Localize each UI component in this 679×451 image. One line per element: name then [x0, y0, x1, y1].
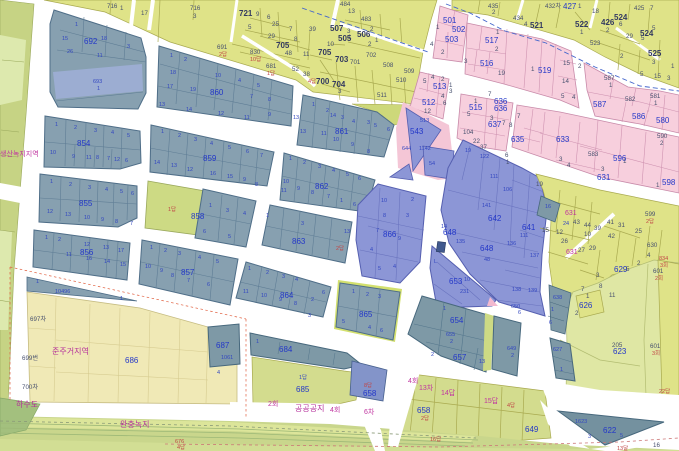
svg-text:1답: 1답 [299, 374, 307, 381]
svg-text:6: 6 [505, 152, 509, 159]
svg-text:1: 1 [436, 24, 440, 31]
svg-text:512: 512 [422, 98, 436, 107]
svg-text:31: 31 [618, 222, 625, 229]
svg-text:7: 7 [187, 278, 190, 284]
svg-text:2: 2 [178, 133, 181, 139]
svg-text:6: 6 [358, 176, 361, 182]
svg-text:635: 635 [511, 135, 525, 144]
svg-text:1: 1 [551, 307, 554, 313]
svg-text:10: 10 [333, 137, 339, 143]
svg-text:13: 13 [103, 245, 109, 251]
svg-text:3: 3 [127, 44, 130, 50]
svg-text:111: 111 [490, 174, 498, 180]
svg-text:19: 19 [498, 70, 505, 77]
svg-text:2: 2 [164, 248, 167, 254]
svg-text:19: 19 [465, 148, 471, 154]
svg-text:5: 5 [127, 133, 130, 139]
svg-text:861: 861 [335, 127, 349, 136]
svg-text:38: 38 [303, 71, 310, 78]
svg-text:1: 1 [170, 53, 173, 59]
svg-text:17: 17 [167, 84, 173, 90]
svg-text:15: 15 [563, 60, 570, 67]
svg-text:2: 2 [326, 108, 329, 114]
svg-text:2: 2 [368, 41, 372, 48]
svg-text:138: 138 [512, 287, 521, 293]
svg-text:684: 684 [279, 345, 293, 354]
svg-text:4: 4 [198, 255, 201, 261]
svg-text:3: 3 [378, 294, 381, 300]
svg-text:2: 2 [575, 310, 579, 317]
svg-text:648: 648 [480, 244, 494, 253]
svg-text:590: 590 [657, 133, 668, 140]
svg-text:502: 502 [452, 25, 466, 34]
svg-text:4: 4 [430, 41, 434, 48]
svg-text:13: 13 [293, 115, 299, 121]
svg-text:10답: 10답 [250, 56, 261, 63]
svg-text:3: 3 [652, 59, 656, 66]
svg-text:9: 9 [398, 236, 401, 242]
svg-text:1: 1 [474, 98, 478, 105]
svg-text:2회: 2회 [268, 400, 278, 408]
svg-text:6: 6 [619, 21, 623, 28]
svg-text:626: 626 [579, 301, 593, 310]
svg-text:15: 15 [120, 262, 126, 268]
svg-text:8: 8 [599, 283, 603, 290]
svg-text:4: 4 [111, 130, 114, 136]
svg-text:3: 3 [178, 251, 181, 257]
svg-text:1: 1 [654, 100, 658, 107]
svg-text:8: 8 [509, 122, 513, 129]
svg-text:54: 54 [429, 161, 435, 167]
svg-text:700: 700 [316, 77, 330, 86]
svg-text:12: 12 [47, 209, 53, 215]
svg-text:716: 716 [190, 5, 201, 12]
svg-text:13: 13 [65, 212, 71, 218]
svg-text:1: 1 [289, 156, 292, 162]
svg-text:14: 14 [330, 113, 336, 119]
svg-text:27: 27 [578, 247, 585, 254]
svg-text:506: 506 [357, 30, 371, 39]
svg-text:4회: 4회 [408, 377, 418, 385]
svg-text:14: 14 [562, 78, 569, 85]
svg-text:15: 15 [654, 73, 661, 80]
svg-text:141: 141 [482, 203, 491, 209]
svg-text:6: 6 [380, 328, 383, 334]
svg-text:10496: 10496 [55, 289, 70, 295]
svg-text:9: 9 [279, 297, 282, 303]
svg-text:완충녹지: 완충녹지 [120, 420, 149, 429]
svg-text:1: 1 [671, 63, 675, 70]
svg-text:501: 501 [443, 16, 457, 25]
svg-text:13차: 13차 [419, 383, 434, 392]
svg-text:7: 7 [502, 120, 506, 127]
svg-text:6: 6 [353, 202, 356, 208]
svg-text:5: 5 [423, 78, 427, 85]
svg-text:4: 4 [210, 141, 213, 147]
svg-text:513: 513 [433, 82, 447, 91]
svg-text:2: 2 [366, 292, 369, 298]
svg-text:633: 633 [556, 135, 570, 144]
svg-text:4회: 4회 [330, 406, 340, 414]
svg-text:866: 866 [383, 230, 397, 239]
svg-text:5: 5 [378, 266, 381, 272]
svg-text:3: 3 [308, 313, 311, 319]
svg-text:6: 6 [549, 320, 552, 326]
svg-text:8: 8 [311, 190, 314, 196]
svg-text:10: 10 [145, 264, 151, 270]
svg-text:864: 864 [280, 291, 294, 300]
svg-text:생산녹지지역: 생산녹지지역 [0, 149, 39, 158]
svg-text:15: 15 [62, 36, 68, 42]
svg-text:1: 1 [75, 22, 78, 28]
svg-text:9: 9 [101, 217, 104, 223]
svg-text:587: 587 [593, 100, 607, 109]
svg-text:3: 3 [193, 13, 197, 20]
svg-text:2답: 2답 [336, 245, 344, 252]
svg-text:623: 623 [613, 347, 627, 356]
svg-text:1: 1 [266, 213, 269, 219]
svg-text:627: 627 [553, 347, 562, 353]
svg-text:2: 2 [58, 237, 61, 243]
svg-text:434: 434 [513, 15, 524, 22]
svg-text:106: 106 [503, 187, 512, 193]
svg-text:859: 859 [203, 154, 217, 163]
svg-text:1: 1 [97, 86, 100, 92]
svg-text:3: 3 [318, 164, 321, 170]
svg-text:7: 7 [289, 26, 293, 33]
svg-text:587: 587 [604, 75, 615, 82]
svg-text:3: 3 [406, 213, 409, 219]
svg-text:11: 11 [609, 292, 616, 299]
svg-text:10: 10 [381, 198, 387, 204]
svg-text:136: 136 [507, 241, 516, 247]
svg-text:14: 14 [154, 160, 160, 166]
svg-text:137: 137 [530, 253, 539, 259]
svg-text:3: 3 [88, 185, 91, 191]
svg-text:2: 2 [441, 76, 445, 83]
svg-text:4: 4 [393, 264, 396, 270]
svg-text:691: 691 [217, 44, 228, 51]
svg-text:3: 3 [601, 166, 605, 173]
svg-text:5: 5 [257, 83, 260, 89]
svg-text:1061: 1061 [221, 355, 233, 361]
svg-text:1: 1 [580, 29, 584, 36]
svg-text:18: 18 [170, 70, 176, 76]
svg-text:631: 631 [597, 173, 611, 182]
svg-text:14: 14 [441, 224, 447, 230]
svg-text:517: 517 [485, 36, 499, 45]
svg-text:15: 15 [227, 174, 233, 180]
svg-text:16: 16 [210, 171, 216, 177]
svg-text:599: 599 [645, 211, 656, 218]
svg-text:3: 3 [194, 137, 197, 143]
svg-text:865: 865 [359, 310, 373, 319]
svg-text:2: 2 [606, 27, 610, 34]
svg-text:699번: 699번 [22, 354, 38, 362]
svg-text:9: 9 [351, 142, 354, 148]
svg-text:8답: 8답 [364, 382, 372, 389]
svg-text:716: 716 [107, 3, 118, 10]
svg-text:12: 12 [114, 157, 120, 163]
svg-text:721: 721 [239, 9, 253, 18]
svg-text:1623: 1623 [575, 419, 587, 425]
svg-text:5: 5 [228, 234, 231, 240]
svg-text:2: 2 [311, 297, 314, 303]
svg-text:6: 6 [246, 149, 249, 155]
svg-text:1답: 1답 [168, 206, 176, 213]
svg-text:17: 17 [141, 10, 148, 17]
svg-text:3: 3 [94, 128, 97, 134]
svg-text:41: 41 [607, 219, 614, 226]
svg-text:15: 15 [542, 227, 549, 234]
svg-text:522: 522 [575, 20, 589, 29]
svg-text:2: 2 [431, 352, 434, 358]
svg-text:2: 2 [660, 140, 664, 147]
svg-text:1142: 1142 [419, 146, 431, 152]
svg-text:12: 12 [424, 108, 431, 115]
svg-text:7: 7 [250, 94, 253, 100]
svg-text:6: 6 [518, 310, 521, 316]
svg-text:1: 1 [209, 203, 212, 209]
svg-text:11: 11 [243, 289, 249, 295]
svg-text:3: 3 [338, 88, 342, 95]
svg-text:1: 1 [312, 102, 315, 108]
svg-text:631: 631 [565, 210, 577, 217]
svg-text:26: 26 [67, 49, 73, 55]
svg-text:12: 12 [218, 111, 224, 117]
svg-text:4: 4 [524, 21, 528, 28]
svg-text:2: 2 [74, 125, 77, 131]
svg-text:11: 11 [321, 131, 327, 137]
svg-text:508: 508 [383, 62, 394, 69]
svg-text:9: 9 [160, 268, 163, 274]
svg-text:5: 5 [216, 259, 219, 265]
svg-text:4: 4 [368, 325, 371, 331]
svg-text:654: 654 [450, 316, 464, 325]
svg-text:13: 13 [159, 102, 165, 108]
svg-text:139: 139 [528, 288, 537, 294]
svg-text:630: 630 [647, 242, 658, 249]
svg-text:426: 426 [601, 18, 615, 27]
svg-text:692: 692 [84, 37, 98, 46]
svg-text:29: 29 [589, 245, 596, 252]
svg-text:5: 5 [652, 25, 656, 32]
svg-text:11: 11 [86, 155, 92, 161]
svg-text:공공공지: 공공공지 [295, 404, 324, 413]
svg-text:644: 644 [402, 146, 411, 152]
svg-text:1: 1 [609, 82, 613, 89]
svg-text:505: 505 [338, 34, 352, 43]
svg-text:1: 1 [578, 3, 582, 10]
svg-text:9: 9 [256, 11, 260, 18]
svg-text:658: 658 [417, 406, 431, 415]
svg-text:10: 10 [50, 150, 56, 156]
svg-text:1: 1 [560, 367, 563, 373]
svg-text:12: 12 [187, 167, 193, 173]
svg-text:10: 10 [261, 293, 267, 299]
svg-text:1: 1 [496, 29, 500, 36]
svg-text:11: 11 [97, 53, 103, 59]
svg-text:6: 6 [125, 158, 128, 164]
svg-text:653: 653 [449, 277, 463, 286]
svg-text:1: 1 [120, 296, 123, 302]
svg-text:2: 2 [450, 339, 453, 345]
svg-text:2: 2 [370, 26, 374, 33]
svg-text:10: 10 [464, 277, 470, 283]
svg-text:1: 1 [36, 279, 39, 285]
svg-text:523: 523 [590, 40, 601, 47]
svg-text:834: 834 [659, 256, 668, 262]
svg-text:3: 3 [367, 120, 370, 126]
svg-text:642: 642 [488, 214, 502, 223]
svg-text:39: 39 [594, 225, 601, 232]
svg-text:6: 6 [207, 282, 210, 288]
svg-text:7: 7 [650, 5, 654, 12]
svg-text:636: 636 [494, 104, 508, 113]
svg-text:6: 6 [203, 229, 206, 235]
svg-text:37: 37 [480, 144, 487, 151]
svg-text:5: 5 [561, 93, 565, 100]
svg-text:641: 641 [522, 223, 536, 232]
svg-text:862: 862 [315, 182, 329, 191]
svg-text:42: 42 [608, 233, 615, 240]
svg-text:5: 5 [228, 145, 231, 151]
svg-text:543: 543 [410, 127, 424, 136]
svg-text:7: 7 [130, 221, 133, 227]
svg-text:5: 5 [641, 35, 645, 42]
svg-text:10: 10 [84, 215, 90, 221]
svg-text:649: 649 [525, 425, 539, 434]
svg-text:준주거지역: 준주거지역 [52, 346, 89, 356]
svg-text:122: 122 [480, 154, 489, 160]
svg-text:111: 111 [520, 233, 528, 239]
svg-text:581: 581 [650, 93, 661, 100]
svg-text:8: 8 [115, 219, 118, 225]
svg-text:8: 8 [255, 182, 258, 188]
svg-text:2회: 2회 [655, 274, 663, 282]
svg-text:8: 8 [294, 36, 298, 43]
svg-text:3: 3 [667, 75, 671, 82]
svg-text:649: 649 [507, 346, 516, 352]
svg-text:14: 14 [186, 107, 192, 113]
svg-text:432차: 432차 [545, 2, 561, 10]
svg-text:4: 4 [295, 277, 298, 283]
svg-text:6: 6 [322, 290, 325, 296]
svg-text:1: 1 [623, 158, 627, 165]
svg-text:7: 7 [488, 91, 492, 98]
svg-text:2: 2 [266, 270, 269, 276]
svg-text:231: 231 [460, 289, 469, 295]
svg-text:5: 5 [620, 433, 623, 439]
svg-text:2: 2 [411, 197, 414, 203]
svg-text:1: 1 [248, 266, 251, 272]
svg-text:681: 681 [266, 63, 277, 70]
svg-text:1: 1 [506, 159, 510, 166]
svg-text:6: 6 [443, 100, 447, 107]
svg-text:638: 638 [553, 295, 562, 301]
svg-text:13: 13 [344, 229, 350, 235]
svg-text:582: 582 [625, 96, 636, 103]
svg-text:1: 1 [531, 66, 535, 73]
svg-text:860: 860 [210, 88, 224, 97]
svg-text:3: 3 [588, 434, 591, 440]
svg-text:686: 686 [125, 356, 139, 365]
svg-text:13: 13 [171, 163, 177, 169]
svg-text:19: 19 [536, 181, 543, 188]
svg-text:3회: 3회 [652, 349, 660, 357]
svg-text:13: 13 [348, 8, 355, 15]
svg-text:5: 5 [120, 189, 123, 195]
svg-text:4: 4 [370, 247, 373, 253]
svg-text:48: 48 [484, 257, 490, 263]
svg-text:1: 1 [340, 198, 343, 204]
svg-text:2: 2 [441, 49, 445, 56]
svg-text:1: 1 [50, 179, 53, 185]
svg-text:702: 702 [366, 52, 377, 59]
svg-text:1답: 1답 [267, 70, 275, 77]
svg-text:2답: 2답 [646, 218, 654, 225]
svg-text:511: 511 [377, 92, 387, 99]
svg-text:2: 2 [492, 9, 496, 16]
svg-text:10: 10 [215, 73, 221, 79]
svg-text:655: 655 [446, 332, 455, 338]
svg-text:11: 11 [303, 51, 310, 58]
svg-text:18: 18 [101, 36, 107, 42]
svg-text:1: 1 [443, 306, 446, 312]
svg-text:425: 425 [634, 5, 645, 12]
svg-text:427: 427 [563, 2, 577, 11]
svg-text:11: 11 [244, 115, 250, 121]
svg-text:4답: 4답 [177, 444, 185, 451]
svg-text:1: 1 [375, 37, 379, 44]
svg-text:14답: 14답 [441, 388, 456, 397]
svg-text:2: 2 [495, 46, 499, 53]
svg-text:601: 601 [653, 268, 664, 275]
svg-text:10: 10 [327, 41, 334, 48]
svg-text:4: 4 [105, 187, 108, 193]
svg-text:9: 9 [297, 186, 300, 192]
svg-text:25: 25 [635, 228, 642, 235]
svg-text:1: 1 [120, 5, 124, 12]
svg-text:29: 29 [268, 33, 275, 40]
svg-text:2: 2 [184, 57, 187, 63]
svg-text:1: 1 [586, 293, 590, 300]
svg-text:3: 3 [301, 221, 304, 227]
svg-text:3: 3 [490, 115, 494, 122]
svg-text:11: 11 [281, 188, 287, 194]
svg-text:8: 8 [294, 301, 297, 307]
svg-text:586: 586 [632, 112, 646, 121]
svg-text:7: 7 [517, 113, 521, 120]
svg-text:29: 29 [626, 33, 633, 40]
svg-text:16: 16 [545, 204, 551, 210]
svg-text:483: 483 [361, 16, 372, 23]
svg-text:5: 5 [467, 111, 471, 118]
svg-text:5: 5 [248, 24, 252, 31]
svg-text:15답: 15답 [484, 396, 499, 405]
svg-text:3: 3 [596, 272, 600, 279]
svg-text:2답: 2답 [219, 51, 227, 58]
svg-text:658: 658 [363, 389, 377, 398]
svg-text:484: 484 [340, 1, 351, 8]
svg-text:516: 516 [480, 59, 494, 68]
svg-text:6차: 6차 [364, 407, 375, 416]
svg-text:9: 9 [72, 154, 75, 160]
svg-text:525: 525 [648, 49, 662, 58]
svg-text:24: 24 [563, 221, 569, 227]
svg-text:14: 14 [104, 259, 110, 265]
svg-text:9: 9 [243, 177, 246, 183]
